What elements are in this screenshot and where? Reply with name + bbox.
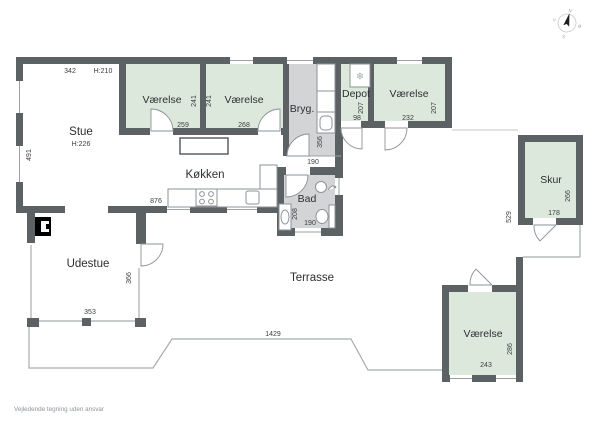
label-vaerelse-ne: Værelse [389, 88, 428, 100]
label-depot: Depot [342, 88, 370, 100]
door-vaerelse-ne [385, 128, 407, 150]
freezer-icon: ❄ [350, 64, 370, 87]
dim-udestue-depth: 366 [126, 272, 133, 284]
bathroom-sink-icon [279, 204, 291, 230]
dim-vaerelse-nw-depth: 241 [191, 95, 198, 107]
label-vaerelse-s: Værelse [463, 328, 502, 340]
dim-koekken-counter: 876 [150, 198, 162, 205]
dim-vaerelse-n-depth: 241 [206, 95, 213, 107]
label-bad: Bad [298, 193, 317, 205]
dim-stue-left: 491 [26, 149, 33, 161]
dim-vaerelse-nw-width: 259 [177, 122, 189, 129]
dim-bad-door: 190 [304, 220, 316, 227]
svg-text:❄: ❄ [356, 72, 364, 83]
floorplan-canvas: ❄ N Ø S V [0, 0, 600, 424]
compass-w: V [552, 17, 556, 23]
bryg-cabinets [317, 64, 335, 133]
dim-skur-depth: 266 [565, 190, 572, 202]
compass-icon: N Ø S V [549, 4, 586, 42]
door-skur [534, 225, 556, 241]
dim-depot-width: 98 [353, 115, 361, 122]
dim-depot-depth: 207 [358, 102, 365, 114]
label-koekken: Køkken [186, 169, 225, 181]
dim-stue-top: 342 [64, 68, 76, 75]
label-bryggers: Bryg. [290, 103, 315, 115]
door-vaerelse-s [470, 269, 492, 285]
udestue-post-se [135, 318, 146, 327]
dim-bryggers-door: 190 [307, 159, 319, 166]
kitchen-counter [168, 189, 277, 207]
kitchen-counter-arm [260, 165, 277, 189]
dim-vaerelse-s-depth: 286 [507, 343, 514, 355]
fireplace-icon [35, 217, 51, 236]
kitchen-island [180, 138, 228, 154]
dim-skur-width: 178 [548, 210, 560, 217]
note-ceiling-210: H:210 [94, 68, 113, 75]
dim-udestue-width: 353 [84, 309, 96, 316]
stove-icon [196, 189, 217, 206]
dim-bad-depth: 208 [292, 208, 299, 220]
label-vaerelse-n: Værelse [224, 94, 263, 106]
label-udestue: Udestue [67, 258, 110, 270]
compass-n: N [568, 8, 572, 14]
udestue-post-sw [27, 318, 39, 327]
label-terrasse: Terrasse [290, 272, 334, 284]
kitchen-sink-icon [246, 191, 259, 204]
compass-e: Ø [577, 23, 582, 29]
compass-s: S [562, 34, 566, 40]
door-depot [341, 128, 362, 149]
dim-terrasse-front: 1429 [265, 331, 281, 338]
note-ceiling-226: H:226 [72, 141, 91, 148]
washer-icon [320, 116, 332, 130]
udestue-post-s [82, 318, 91, 326]
dim-vaerelse-n-width: 268 [238, 122, 250, 129]
terrasse-edge [29, 327, 442, 370]
dim-terrasse-east: 529 [506, 211, 513, 223]
label-skur: Skur [540, 174, 562, 186]
door-udestue [141, 244, 163, 266]
label-stue: Stue [69, 126, 93, 138]
label-vaerelse-nw: Værelse [142, 94, 181, 106]
dim-vaerelse-ne-width: 232 [402, 115, 414, 122]
disclaimer-text: Vejledende tegning uden ansvar [14, 406, 104, 413]
dim-vaerelse-s-width: 243 [480, 362, 492, 369]
dim-bryggers-depth: 356 [317, 136, 324, 148]
floorplan-drawing: ❄ N Ø S V [0, 0, 600, 424]
dim-vaerelse-ne-depth: 207 [431, 102, 438, 114]
